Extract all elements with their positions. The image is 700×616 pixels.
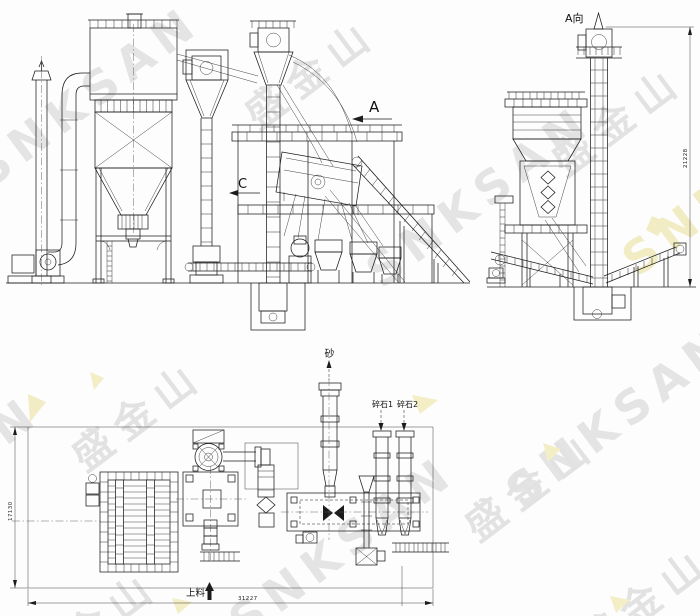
baghouse-dust-collector <box>88 14 179 283</box>
chimney-stack <box>32 56 51 285</box>
sand-pipe: 砂 <box>319 347 344 540</box>
plan-view: 17130 31227 <box>8 347 449 606</box>
plant-boundary <box>28 427 433 588</box>
height-dim-text: 21228 <box>683 148 689 168</box>
feed-label: 上料 <box>186 587 206 599</box>
inclined-conveyor <box>325 156 470 283</box>
view-title: A向 <box>565 11 584 25</box>
exhaust-duct <box>48 73 90 265</box>
toothed-conveyor-plan <box>392 543 449 552</box>
gravel2-label: 碎石2 <box>397 399 418 409</box>
gravel1-label: 碎石1 <box>372 399 393 409</box>
engineering-drawing-sheet: SNKSAN SNKSAN 盛金山 SNKSAN 盛金山 SNKSAN 盛金山 … <box>0 0 700 616</box>
depth-dim-text: 17130 <box>8 501 14 521</box>
ground-conveyor <box>185 263 315 271</box>
side-elevation-view: A向 <box>487 11 696 320</box>
blower-plan <box>193 430 224 471</box>
section-a-text: A <box>369 98 380 116</box>
width-dim-text: 31227 <box>238 596 258 602</box>
section-label-c: C <box>229 177 260 196</box>
feed-pipes <box>277 55 357 166</box>
ground-bins <box>289 236 401 283</box>
platform-plan <box>176 466 246 560</box>
screen-tower-a-view <box>495 92 587 287</box>
bucket-elevator-1 <box>183 50 228 283</box>
sand-label: 砂 <box>325 347 335 360</box>
gravel-pipes: 碎石1 碎石2 <box>372 399 418 535</box>
height-dimension: 21228 <box>606 27 694 287</box>
funnel-pipe-plan <box>356 476 385 565</box>
v-conveyors <box>487 243 686 287</box>
elevator-a-view <box>574 13 631 320</box>
suction-duct-lines <box>177 54 258 83</box>
section-c-text: C <box>238 177 247 192</box>
feed-arrow <box>205 582 214 600</box>
depth-dimension: 17130 <box>8 427 28 588</box>
section-label-a: A <box>352 98 392 123</box>
bucket-elevator-2 <box>250 21 305 330</box>
front-elevation-view: A C <box>6 14 470 330</box>
baghouse-plan <box>12 472 178 572</box>
width-dimension: 31227 <box>28 566 433 606</box>
fan-unit <box>8 250 64 283</box>
drawing-linework: A C A向 <box>0 0 700 616</box>
elevator-pit <box>574 287 631 320</box>
